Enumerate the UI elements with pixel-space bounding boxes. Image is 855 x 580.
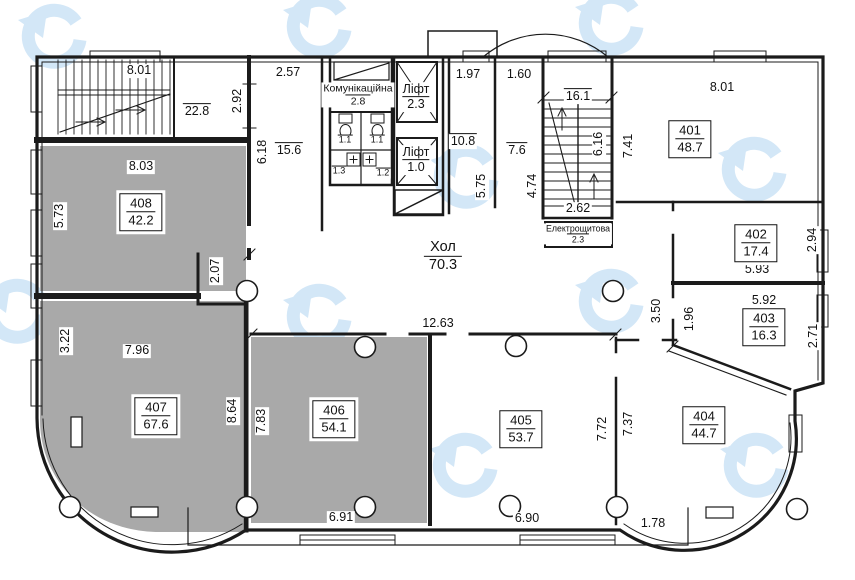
dim-corridor-width: 2.57 [274,66,302,80]
dim-hall-depth1: 3.50 [650,297,664,325]
room-label-407: 407 67.6 [134,397,177,435]
room-number: 407 [141,399,170,415]
watermark-icon [429,439,491,491]
area-wc-2: 1.1 [370,135,385,146]
floor-plan-page: 8.01 2.57 1.97 1.60 8.01 2.62 5.93 5.92 … [0,0,855,580]
dim-room407-width: 7.96 [123,344,151,358]
dim-room407-depth2: 8.64 [226,397,240,425]
room-label-404: 404 44.7 [682,406,725,444]
dim-room401-width: 8.01 [708,81,736,95]
dim-hall-width: 12.63 [420,317,455,331]
dim-room403-depth: 2.71 [807,322,821,350]
elevator-name: Ліфт [403,145,430,159]
dim-room405-depth: 7.72 [596,415,610,443]
room-number: 406 [319,402,348,418]
dim-corridor-length: 6.18 [256,138,270,166]
communication-room-label: Комунікаційна 2.8 [321,82,394,107]
dim-lobby1-length: 5.75 [475,172,489,200]
dim-stair1-depth: 2.92 [231,87,245,115]
elevator-area: 2.3 [402,97,429,112]
hall-area: 70.3 [424,256,462,274]
room-area: 48.7 [675,139,704,156]
area-lobby-stair: 7.6 [506,142,527,158]
room-label-406: 406 54.1 [312,400,355,438]
room-area: 53.7 [506,429,535,446]
room-label-408: 408 42.2 [119,193,162,231]
dim-stair1-width: 8.01 [125,64,153,78]
area-stair-right: 16.1 [564,88,592,104]
electrical-room-name: Електрощитова [546,223,610,233]
room-area: 42.2 [126,212,155,229]
room-number: 408 [126,195,155,211]
stair-treads-left [58,60,170,134]
hall-name: Хол [430,239,456,256]
dim-room408-depth: 5.73 [53,202,67,230]
room-area: 16.3 [749,327,778,344]
dim-room404-width: 1.78 [639,517,667,531]
area-corridor: 15.6 [275,142,303,158]
watermark-icon [720,439,782,491]
dim-room402-depth: 2.94 [806,226,820,254]
dim-room405-width: 6.90 [513,512,541,526]
room-area: 17.4 [741,243,770,260]
dim-stair2-width: 2.62 [564,202,592,216]
communication-room-name: Комунікаційна [323,82,392,94]
room-number: 403 [749,310,778,326]
watermark-icon [18,10,80,62]
dim-room404-depth: 7.37 [622,410,636,438]
watermark-icon [283,0,345,52]
area-stair-left: 22.8 [183,103,211,119]
room-label-401: 401 48.7 [668,120,711,158]
area-wc-4: 1.2 [376,168,391,179]
elevator-area: 1.0 [402,160,429,175]
dim-room406-width: 6.91 [327,511,355,525]
area-wc-1: 1.1 [338,135,353,146]
elevator-label-top: Ліфт 2.3 [400,82,431,112]
hall-label: Хол 70.3 [422,239,464,273]
electrical-room-area: 2.3 [567,234,589,245]
room-number: 405 [506,412,535,428]
room-number: 402 [741,226,770,242]
vent-shaft-icon [334,62,389,80]
room-number: 404 [689,408,718,424]
dim-room402-width: 5.93 [743,263,771,277]
dim-corridor-207: 2.07 [209,257,223,285]
area-lobby-lift: 10.8 [449,133,477,149]
room-label-402: 402 17.4 [734,224,777,262]
dim-room401-depth: 7.41 [622,132,636,160]
dim-room406-depth: 7.83 [255,407,269,435]
room-area: 67.6 [141,416,170,433]
electrical-room-label: Електрощитова 2.3 [544,223,612,244]
vent-shaft-icon [395,190,443,214]
dim-lobby2-length: 4.74 [526,172,540,200]
dim-room403-width: 5.92 [750,294,778,308]
dim-room408-width: 8.03 [127,160,155,174]
room-label-403: 403 16.3 [742,308,785,346]
dim-lobby1-width: 1.97 [454,68,482,82]
dim-room407-depth1: 3.22 [59,327,73,355]
dim-hall-depth2: 1.96 [683,305,697,333]
watermark-icon [718,143,780,195]
area-wc-3: 1.3 [332,166,347,177]
room-area: 54.1 [319,419,348,436]
dim-stair2-length: 6.16 [592,130,606,158]
communication-room-area: 2.8 [346,95,371,108]
room-number: 401 [675,122,704,138]
dim-lobby2-width: 1.60 [505,68,533,82]
sink-icon [347,153,360,166]
elevator-label-bottom: Ліфт 1.0 [400,145,431,175]
room-label-405: 405 53.7 [499,410,542,448]
room-area: 44.7 [689,425,718,442]
elevator-name: Ліфт [403,82,430,96]
sink-icon [363,153,376,166]
